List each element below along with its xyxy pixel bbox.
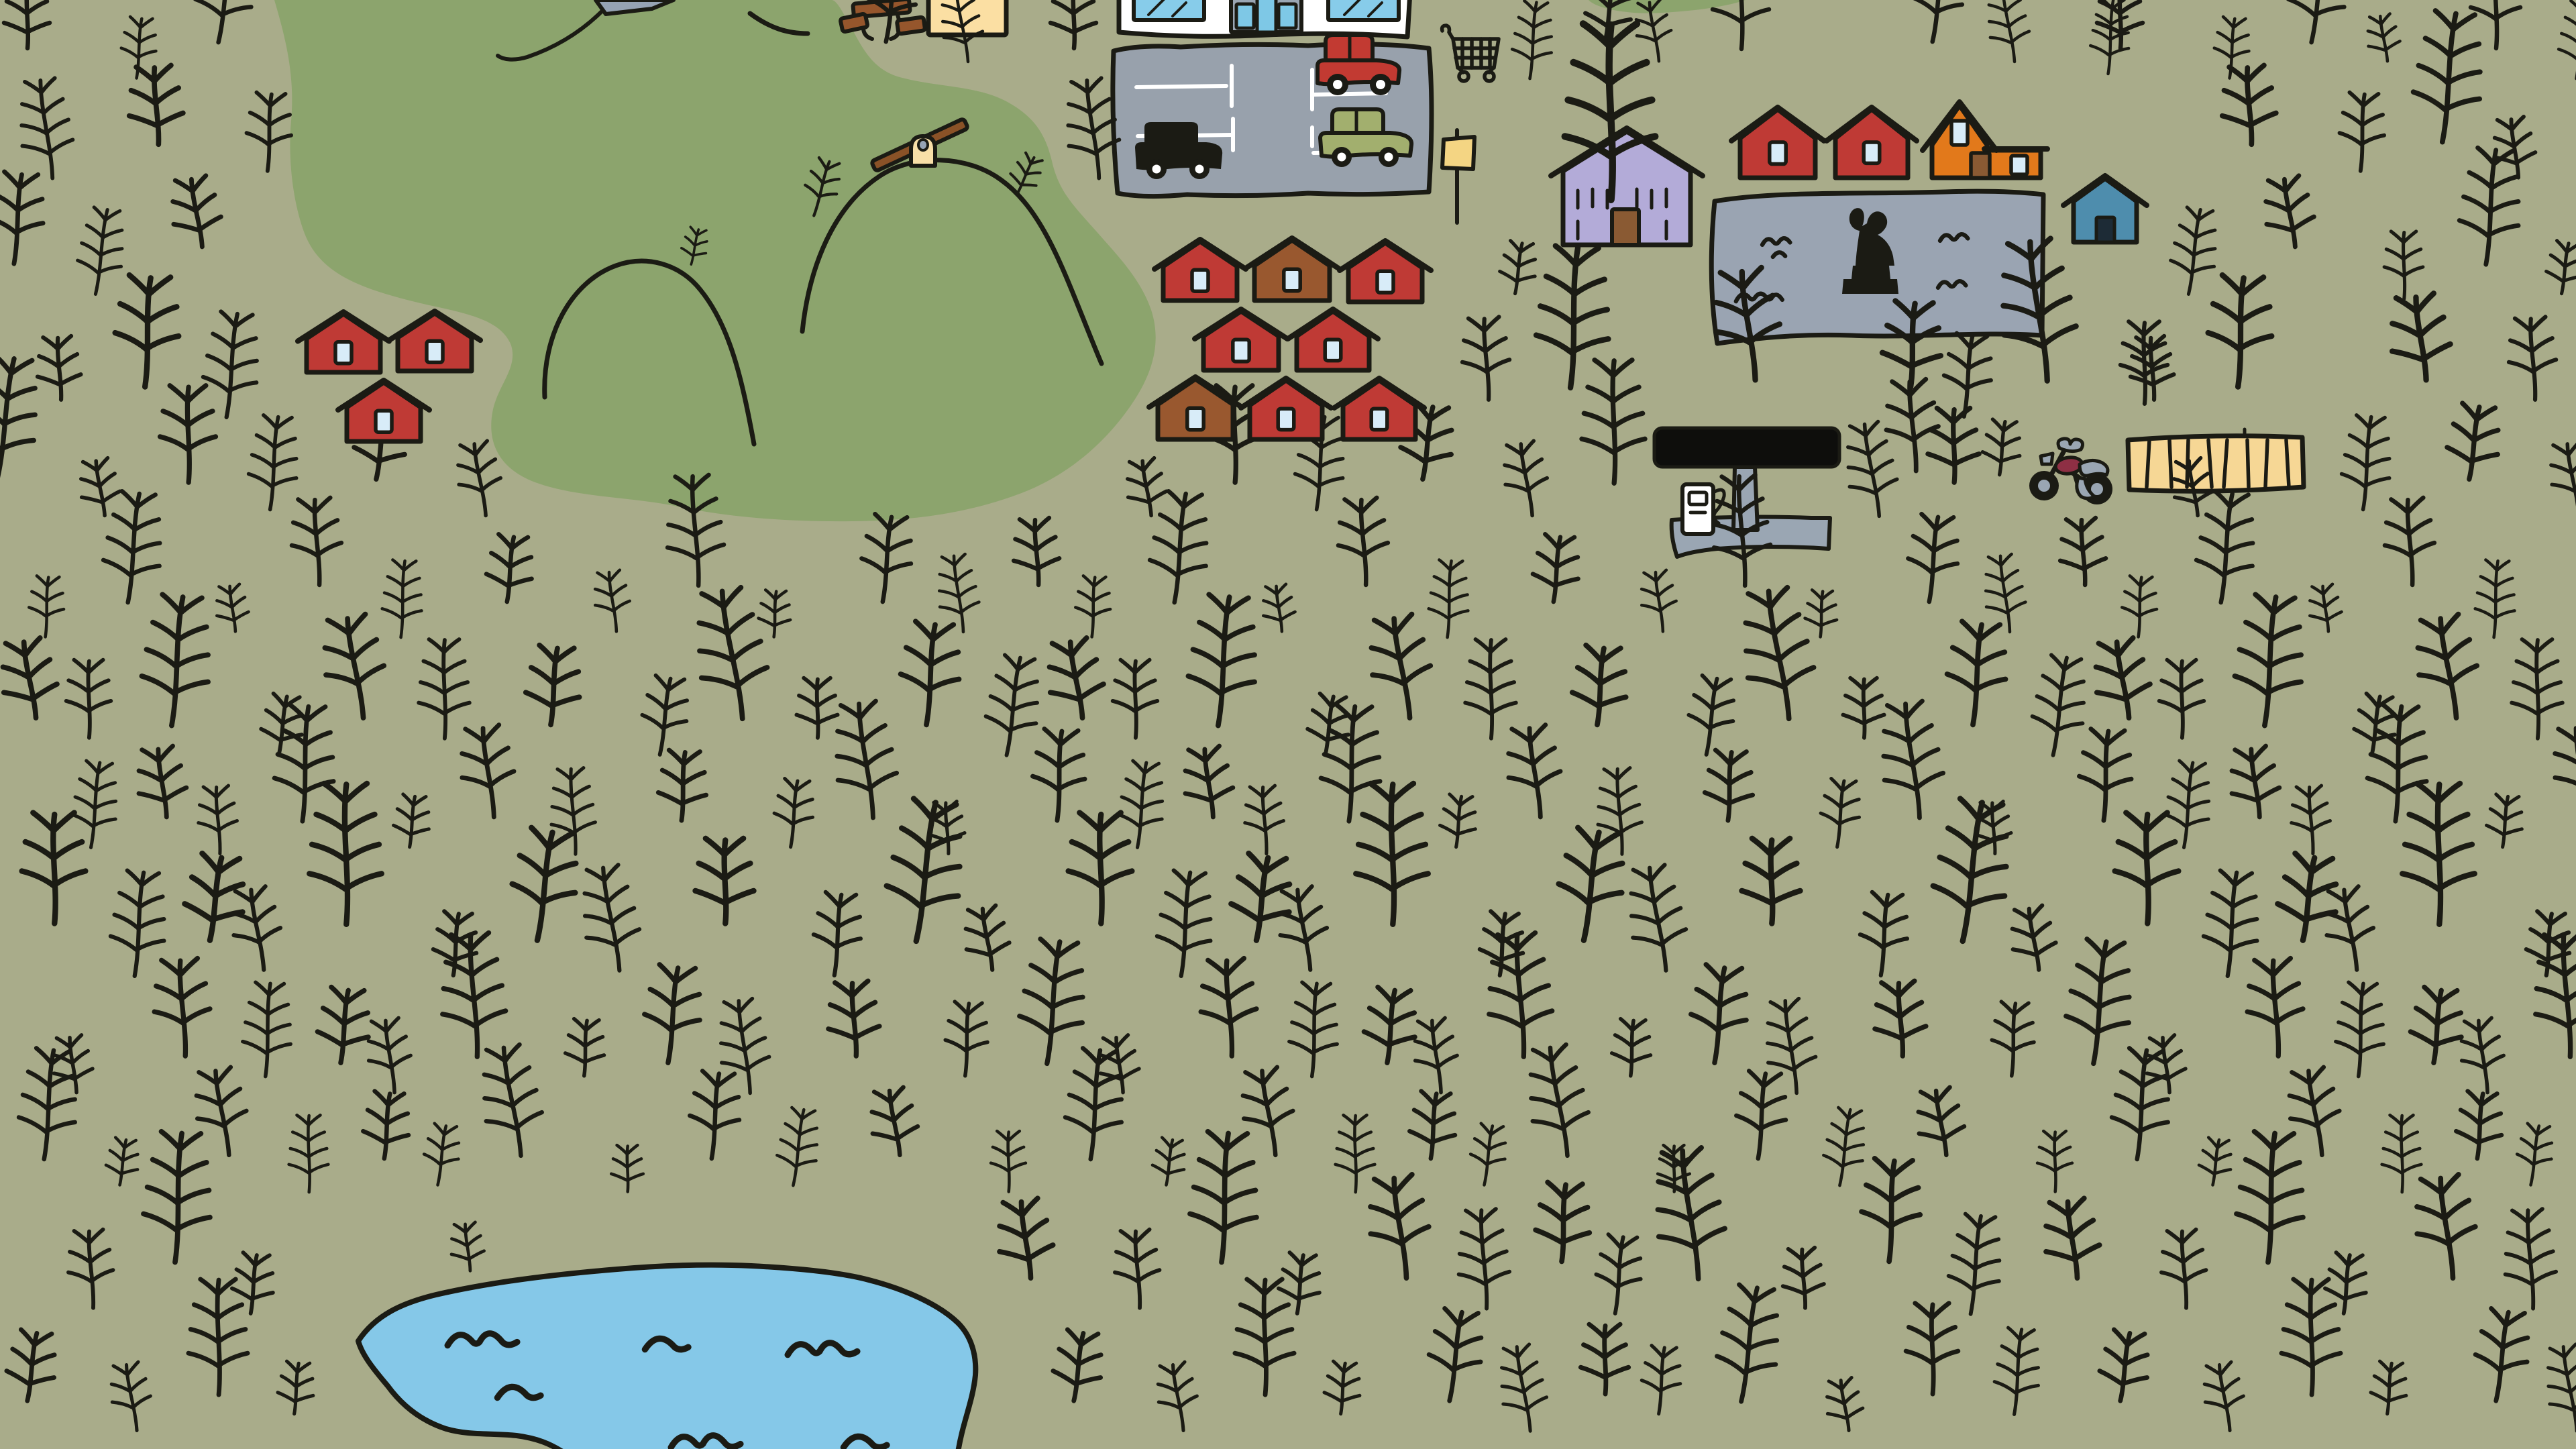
store-window-right	[1328, 0, 1399, 20]
plank-line	[2247, 440, 2249, 487]
plank-line	[2169, 440, 2171, 487]
wheel-hub	[1195, 165, 1204, 174]
store-door-pane-left	[1236, 4, 1254, 28]
cabin-window	[1377, 271, 1393, 292]
store-window-left	[1134, 0, 1204, 20]
seat-fender	[2080, 460, 2108, 476]
orange-house-window	[2011, 156, 2027, 174]
gas-canopy	[1654, 428, 1839, 467]
cabin-window	[376, 411, 392, 432]
lumber-pile[interactable]	[2128, 429, 2304, 491]
wheel-hub	[1376, 80, 1385, 89]
cabin-window	[1770, 142, 1786, 164]
wheel-hub	[1385, 153, 1393, 162]
store-door-center	[1257, 0, 1276, 32]
headlight	[2041, 453, 2053, 464]
purple-house-door	[1612, 209, 1639, 245]
lake[interactable]	[358, 1265, 975, 1449]
wheel-hub	[2038, 480, 2050, 492]
cabin-window	[1371, 409, 1387, 429]
cabin-window	[1325, 339, 1341, 360]
stall-line	[1136, 86, 1226, 87]
cabin-window	[1284, 269, 1300, 291]
wheel-hub	[1152, 165, 1161, 174]
cabin-window	[1233, 339, 1249, 362]
general-store[interactable]	[1119, 0, 1410, 37]
cabin-window	[1278, 409, 1294, 429]
parking-lot[interactable]	[1113, 35, 1432, 197]
forest-town-map	[0, 0, 2576, 1449]
handlebars	[2058, 439, 2083, 451]
cabin-window	[335, 342, 352, 364]
cabin-window	[1192, 270, 1208, 291]
cabin-window	[1187, 408, 1203, 430]
plank-line	[2265, 440, 2267, 487]
store-door-pane-right	[1279, 4, 1296, 28]
orange-house-door	[1971, 153, 1990, 178]
wheel-hub	[1333, 80, 1342, 89]
orange-house-window	[1951, 121, 1968, 145]
blue-house-door	[2096, 217, 2114, 242]
wheel-hub	[1338, 153, 1346, 162]
cabin-window	[427, 341, 443, 362]
cabin-window	[1864, 142, 1880, 163]
